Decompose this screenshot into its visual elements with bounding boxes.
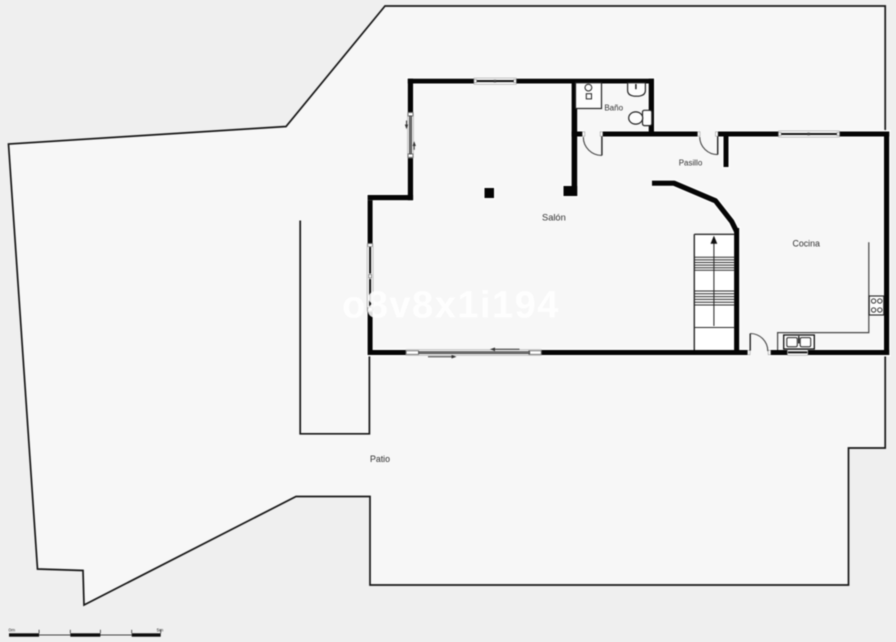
svg-text:Pasillo: Pasillo <box>679 159 703 168</box>
svg-text:Patio: Patio <box>370 454 390 464</box>
svg-text:5m: 5m <box>157 628 164 634</box>
svg-text:Salón: Salón <box>542 212 566 222</box>
svg-text:0m: 0m <box>9 628 16 634</box>
svg-text:Baño: Baño <box>604 104 623 113</box>
svg-text:o8v8x1i194: o8v8x1i194 <box>342 285 560 327</box>
svg-text:Cocina: Cocina <box>793 239 820 249</box>
